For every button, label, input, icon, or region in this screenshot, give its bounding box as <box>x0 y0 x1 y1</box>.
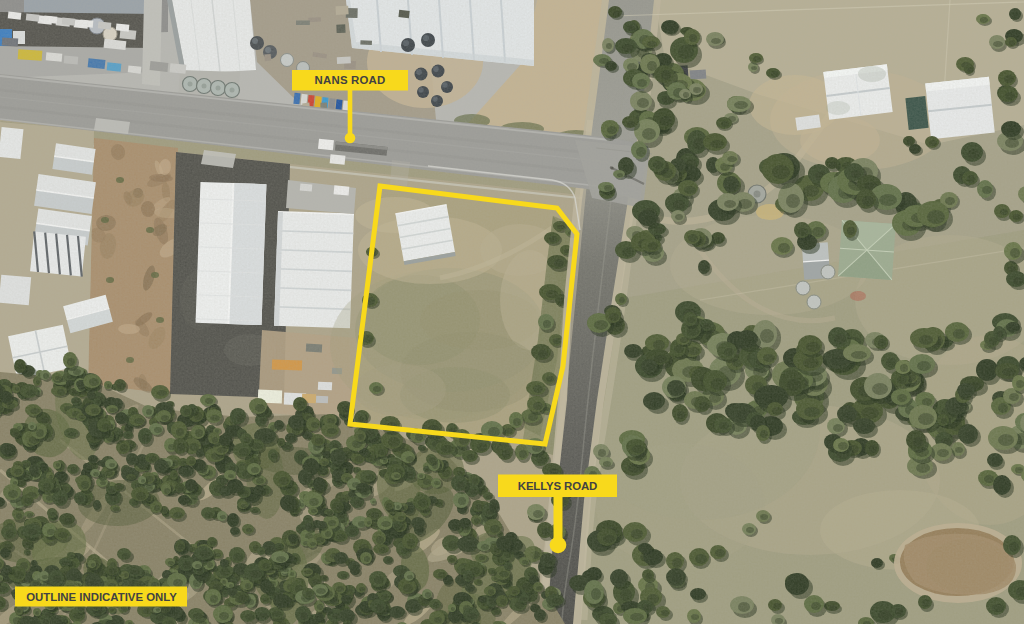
svg-text:OUTLINE INDICATIVE ONLY: OUTLINE INDICATIVE ONLY <box>26 591 177 603</box>
svg-text:KELLYS ROAD: KELLYS ROAD <box>518 480 598 492</box>
svg-text:NANS ROAD: NANS ROAD <box>315 74 386 86</box>
